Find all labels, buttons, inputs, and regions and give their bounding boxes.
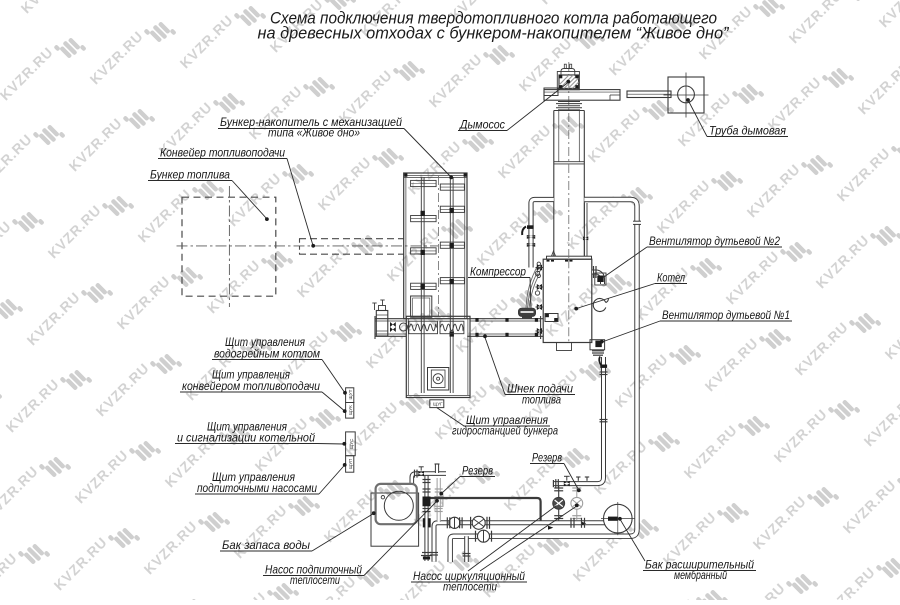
svg-text:Бак запаса воды: Бак запаса воды	[222, 538, 310, 552]
svg-text:Компрессор: Компрессор	[470, 265, 526, 279]
svg-text:ЩУГ: ЩУГ	[433, 402, 443, 407]
svg-text:на древесных отходах с бункеро: на древесных отходах с бункером-накопите…	[258, 24, 730, 43]
svg-text:Резерв: Резерв	[532, 451, 562, 465]
svg-text:Труба дымовая: Труба дымовая	[709, 124, 787, 138]
svg-text:Резерв: Резерв	[462, 464, 493, 478]
svg-text:ЩУТ: ЩУТ	[348, 389, 353, 399]
svg-text:Дымосос: Дымосос	[458, 118, 505, 132]
svg-text:типа «Живое дно»: типа «Живое дно»	[268, 126, 360, 140]
svg-text:подпиточными насосами: подпиточными насосами	[197, 481, 317, 495]
svg-text:Конвейер топливоподачи: Конвейер топливоподачи	[160, 146, 285, 160]
svg-text:и сигнализации котельной: и сигнализации котельной	[177, 431, 315, 445]
svg-text:Вентилятор дутьевой №2: Вентилятор дутьевой №2	[649, 234, 780, 248]
svg-text:ЩУК: ЩУК	[348, 405, 353, 415]
svg-text:Бункер топлива: Бункер топлива	[150, 168, 230, 182]
svg-text:конвейером топливоподачи: конвейером топливоподачи	[182, 379, 320, 393]
svg-text:Котел: Котел	[657, 271, 685, 285]
svg-text:водогрейным котлом: водогрейным котлом	[214, 347, 320, 361]
svg-text:ЩУП: ЩУП	[348, 459, 353, 469]
svg-text:ЩУС: ЩУС	[349, 438, 354, 449]
svg-text:Вентилятор дутьевой №1: Вентилятор дутьевой №1	[662, 308, 790, 322]
